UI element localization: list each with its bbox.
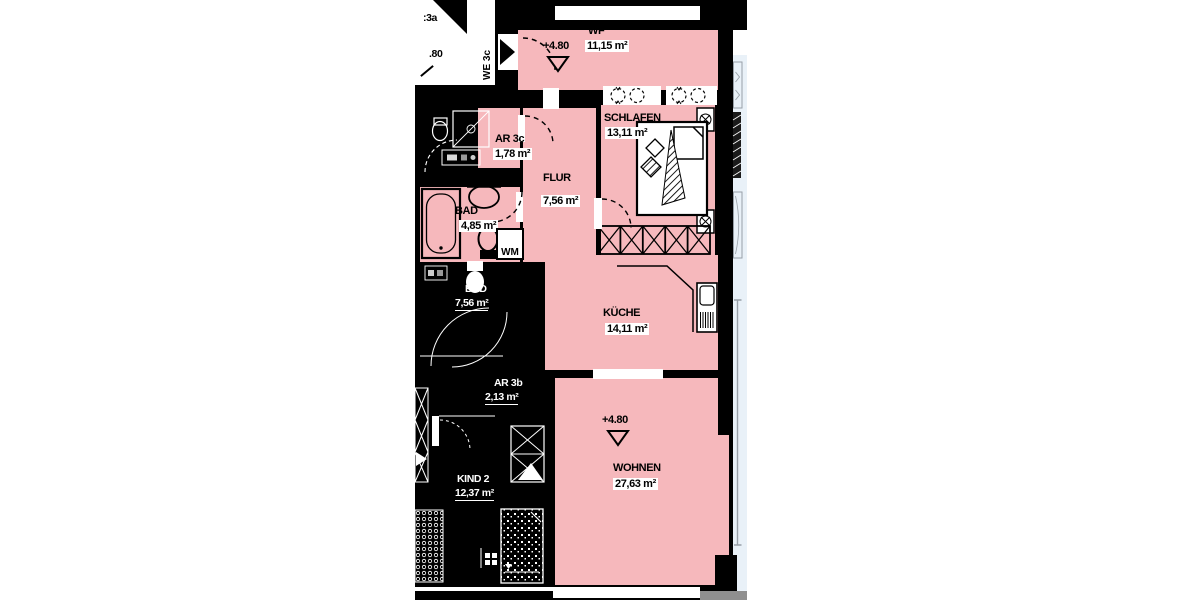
area-schlafen: 13,11 m² [605, 127, 649, 139]
neighbor-wardrobe-right [511, 426, 544, 482]
label-neighbor-kind: KIND 2 [457, 473, 489, 485]
washing-machine: WM [496, 228, 524, 260]
neighbor-small-label-box [425, 266, 447, 280]
area-bad: 4,85 m² [459, 220, 498, 232]
floor-plan: WE 3c :3a .80 [415, 0, 747, 600]
page: { "unit": { "entry_arrow_label_vertical"… [0, 0, 1200, 600]
label-kueche: KÜCHE [603, 308, 640, 319]
wardrobe-band [598, 226, 710, 254]
area-flur: 7,56 m² [541, 195, 580, 207]
label-bad: BAD [455, 206, 478, 217]
area-wohnen: 27,63 m² [613, 478, 658, 490]
area-neighbor-bad: 7,56 m² [455, 297, 488, 311]
level-marker-entry: +4.80 [543, 40, 569, 52]
door-bad [492, 192, 523, 222]
neighbor-bed-icon [501, 509, 543, 583]
label-flur: FLUR [543, 173, 571, 184]
level-triangle-wohnen [608, 431, 628, 445]
neighbor-window-cross [481, 548, 497, 568]
area-wf: 11,15 m² [585, 40, 629, 52]
area-kueche: 14,11 m² [605, 323, 649, 335]
bathtub-icon [422, 189, 460, 258]
area-neighbor-kind: 12,37 m² [455, 487, 494, 501]
neighbor-wardrobe-left [415, 388, 428, 482]
balcony-windows [733, 62, 742, 545]
label-neighbor-ar3b: AR 3b [494, 377, 522, 389]
label-wf: WF [588, 26, 604, 37]
area-ar3c: 1,78 m² [493, 148, 532, 160]
neighbor-mesh-texture [415, 510, 443, 582]
area-neighbor-ar3b: 2,13 m² [485, 391, 518, 405]
washing-machine-label: WM [501, 247, 519, 258]
level-marker-wohnen: +4.80 [602, 414, 628, 426]
label-schlafen: SCHLAFEN [604, 113, 661, 124]
label-ar3c: AR 3c [495, 134, 524, 145]
door-schlafen [594, 198, 631, 229]
neighbor-bath-fixtures [425, 111, 489, 172]
label-neighbor-bad: BAD [465, 283, 487, 295]
label-wohnen: WOHNEN [613, 463, 661, 474]
neighbor-flur-doors [420, 308, 507, 367]
level-triangle-entry [548, 57, 568, 71]
vent-band [603, 86, 717, 105]
neighbor-ar3b-door [432, 416, 495, 450]
